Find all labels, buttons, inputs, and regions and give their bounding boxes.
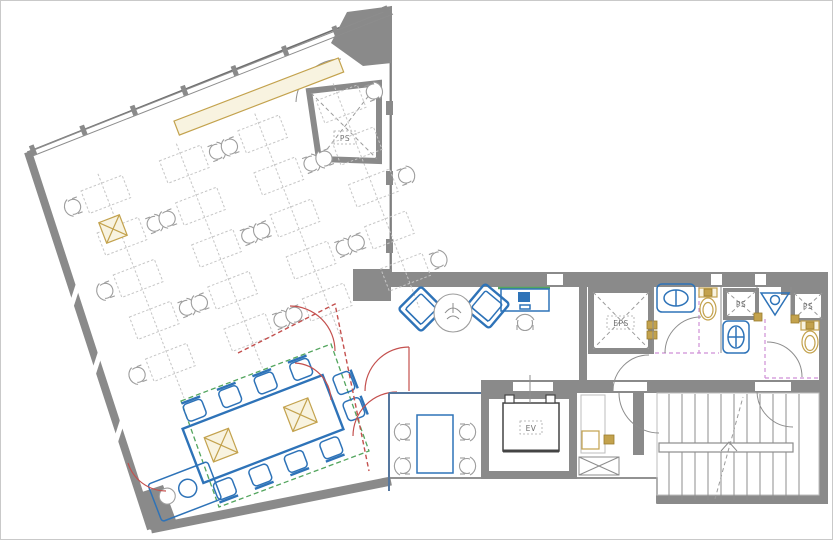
window-gap-1 (547, 274, 563, 285)
reception-monitor (518, 292, 530, 302)
door-gap-corridor (613, 382, 647, 391)
floor-plan-svg: PS (1, 1, 833, 540)
eps-label: EPS (613, 319, 629, 328)
door-gap-ev (513, 382, 553, 391)
door-gap-stairs (755, 382, 791, 391)
wall-post-3 (386, 239, 393, 253)
ps-b-label: PS (803, 302, 813, 311)
toilet2-hinge-1 (754, 313, 762, 321)
service-unit (604, 435, 614, 444)
ev-jamb-left (505, 395, 514, 403)
window-gap-2 (711, 274, 722, 285)
office-chair (428, 248, 450, 271)
ev-label: EV (526, 424, 537, 433)
office-chair (396, 164, 418, 187)
wall-service-right (633, 391, 644, 455)
wall-post-1 (386, 101, 393, 115)
stairs-landing-rail (659, 443, 793, 452)
ps-a-label: PS (736, 300, 746, 309)
wall-junction-pillar (353, 269, 391, 301)
eps-hinge-1 (647, 321, 657, 329)
floor-plan-canvas: PS (0, 0, 833, 540)
toilet2-hinge-2 (791, 315, 799, 323)
ps-top-label: PS (340, 134, 350, 143)
ev-shaft (485, 395, 573, 475)
ev-jamb-right (546, 395, 555, 403)
wall-post-2 (386, 171, 393, 185)
wall-stairs-bottom (657, 495, 828, 504)
window-gap-3 (755, 274, 766, 285)
wall-wing-west (579, 287, 587, 380)
eps-hinge-2 (647, 331, 657, 339)
